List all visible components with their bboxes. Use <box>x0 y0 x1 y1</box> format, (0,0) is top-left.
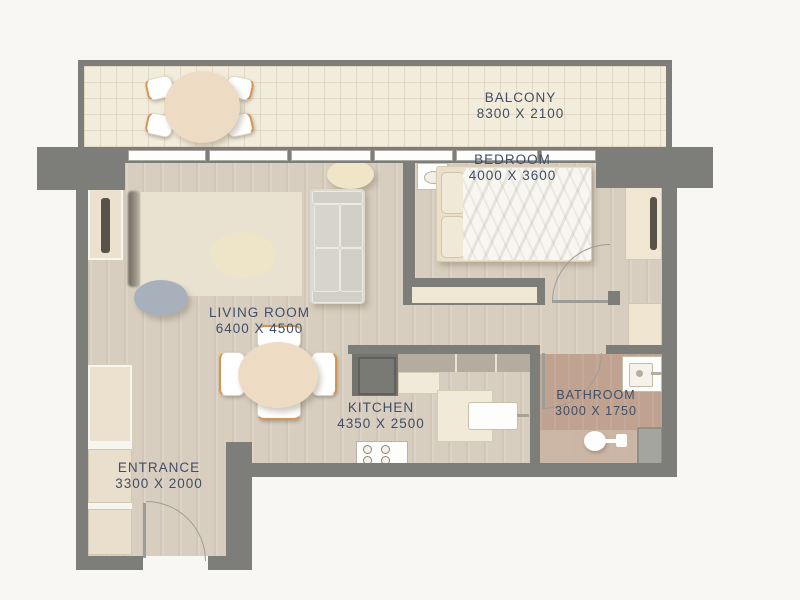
balcony-top-wall <box>78 60 672 66</box>
tv-screen <box>101 198 110 253</box>
room-label-kitchen: KITCHEN 4350 X 2500 <box>286 400 476 432</box>
room-name: KITCHEN <box>286 400 476 416</box>
right-wall <box>662 185 677 477</box>
window-segment <box>291 150 371 161</box>
sofa-back-cushion <box>340 204 363 248</box>
left-wall <box>76 188 88 570</box>
balcony-right-wall <box>666 66 672 148</box>
window-segment <box>209 150 288 161</box>
wardrobe <box>625 187 662 260</box>
floor-plan: BALCONY 8300 X 2100 BEDROOM 4000 X 3600 … <box>0 0 800 600</box>
bathroom-sink-drain <box>636 370 643 377</box>
room-dimensions: 4350 X 2500 <box>286 416 476 432</box>
tv-panel <box>88 188 123 260</box>
toilet-tank <box>616 434 627 447</box>
window-segment <box>128 150 206 161</box>
dining-table <box>238 342 318 408</box>
sofa-armrest <box>312 191 363 204</box>
sofa-seat-cushion <box>314 204 340 248</box>
entrance-bottom-wall-right <box>208 556 252 570</box>
shower-tray <box>637 427 663 465</box>
room-dimensions: 3300 X 2000 <box>78 476 240 492</box>
kitchen-counter <box>398 372 440 394</box>
room-name: BALCONY <box>428 90 613 106</box>
stove-burner <box>381 445 390 454</box>
room-dimensions: 6400 X 4500 <box>162 321 357 337</box>
counter-divider <box>495 352 497 372</box>
room-label-balcony: BALCONY 8300 X 2100 <box>428 90 613 122</box>
fridge-inner <box>358 357 396 395</box>
entrance-closet <box>88 509 132 555</box>
bedroom-left-wall <box>403 163 415 283</box>
coffee-table <box>327 160 374 189</box>
room-label-living-room: LIVING ROOM 6400 X 4500 <box>162 305 357 337</box>
rug-shadow <box>128 191 140 287</box>
counter-divider <box>455 352 457 372</box>
room-dimensions: 8300 X 2100 <box>428 106 613 122</box>
kitchen-top-wall <box>348 345 538 354</box>
room-name: BATHROOM <box>520 387 672 403</box>
sofa-back-cushion <box>340 248 363 292</box>
bottom-wall <box>226 463 677 477</box>
sofa <box>310 189 365 304</box>
left-corner-block <box>37 147 125 190</box>
fridge <box>352 352 398 396</box>
kitchen-counter-top <box>398 352 536 372</box>
balcony-left-wall <box>78 66 84 150</box>
toilet-bowl <box>584 431 606 451</box>
wardrobe-handle <box>650 197 657 250</box>
right-corner-block <box>596 147 713 188</box>
sofa-seat-cushion <box>314 248 340 292</box>
bedroom-door-jamb <box>608 291 620 305</box>
stove-burner <box>363 445 372 454</box>
room-dimensions: 4000 X 3600 <box>420 168 605 184</box>
room-name: LIVING ROOM <box>162 305 357 321</box>
bathroom-top-wall <box>606 345 662 354</box>
room-dimensions: 3000 X 1750 <box>520 403 672 419</box>
bathroom-faucet <box>651 372 662 375</box>
pillow <box>441 216 465 258</box>
room-label-entrance: ENTRANCE 3300 X 2000 <box>78 460 240 492</box>
entrance-closet <box>88 365 132 443</box>
linen-closet <box>628 303 662 347</box>
room-label-bathroom: BATHROOM 3000 X 1750 <box>520 387 672 419</box>
bedroom-wall-niche <box>412 287 537 303</box>
room-label-bedroom: BEDROOM 4000 X 3600 <box>420 152 605 184</box>
balcony-table <box>164 71 240 143</box>
entrance-bottom-wall-left <box>76 556 143 570</box>
room-name: ENTRANCE <box>78 460 240 476</box>
room-name: BEDROOM <box>420 152 605 168</box>
rug-oval <box>210 232 276 278</box>
